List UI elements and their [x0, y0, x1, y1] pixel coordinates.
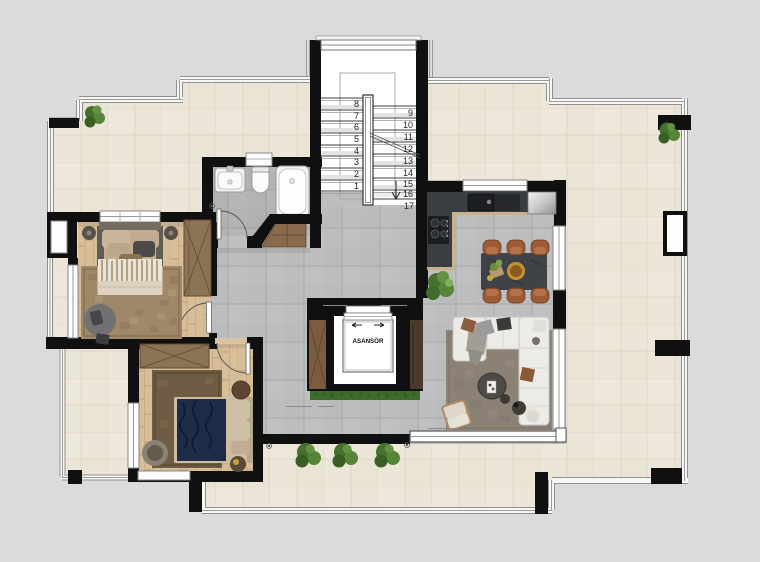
svg-text:16: 16: [403, 189, 413, 199]
svg-text:4: 4: [354, 146, 359, 156]
svg-text:13: 13: [403, 156, 413, 166]
svg-text:1: 1: [354, 181, 359, 191]
svg-text:8: 8: [354, 99, 359, 109]
svg-text:3: 3: [354, 157, 359, 167]
svg-text:9: 9: [408, 108, 413, 118]
svg-text:14: 14: [403, 168, 413, 178]
svg-text:17: 17: [404, 201, 414, 211]
svg-text:11: 11: [404, 132, 413, 142]
svg-text:2: 2: [354, 169, 359, 179]
svg-text:ASANSÖR: ASANSÖR: [353, 338, 384, 345]
svg-text:10: 10: [403, 120, 413, 130]
svg-text:7: 7: [354, 111, 359, 121]
svg-text:12: 12: [403, 144, 413, 154]
svg-text:15: 15: [403, 179, 413, 189]
svg-text:5: 5: [354, 134, 359, 144]
svg-text:6: 6: [354, 122, 359, 132]
